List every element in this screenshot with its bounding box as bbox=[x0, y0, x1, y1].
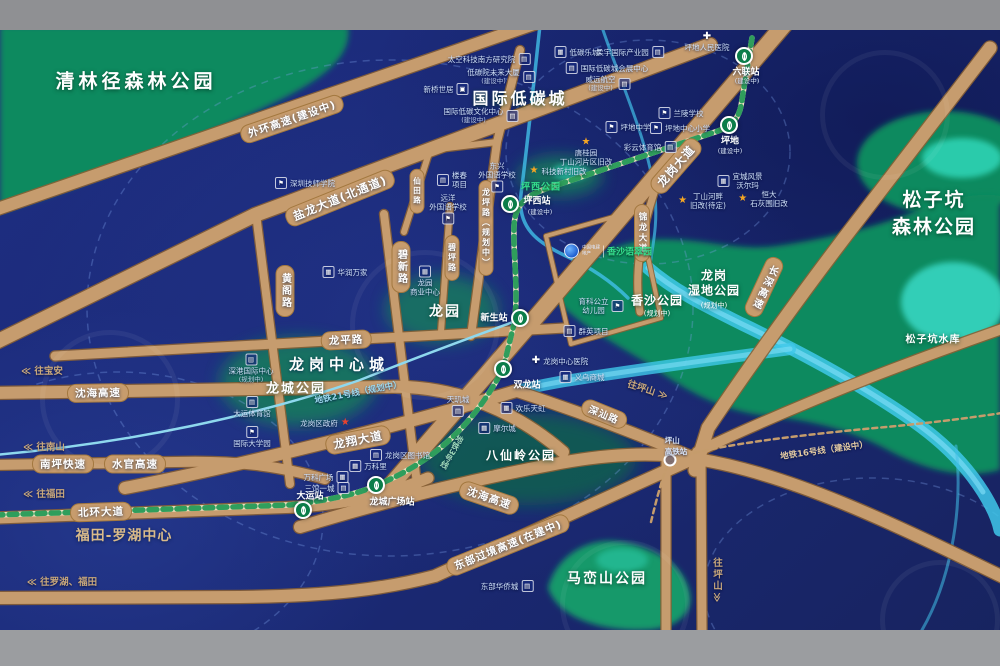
poi: 柔宇国际产业园▤ bbox=[596, 46, 664, 58]
metro-station-icon bbox=[501, 195, 519, 213]
school-icon: ⚑ bbox=[612, 300, 624, 312]
direction-arrow-label: ≪ 往南山 bbox=[23, 439, 65, 453]
poi-label: 恒大石灰围旧改 bbox=[750, 190, 788, 208]
poi-label: 唐桂园丁山河片区旧改 bbox=[560, 149, 613, 167]
school-icon: ⚑ bbox=[246, 426, 258, 438]
poi-label: 深圳技师学院 bbox=[290, 179, 335, 188]
poi-label: 东部华侨城 bbox=[481, 582, 519, 591]
poi-label: 兰陵学校 bbox=[674, 109, 704, 118]
project-marker: 中国电建 地产 香沙语翠园 bbox=[564, 244, 652, 259]
direction-arrow-label: 往坪山≫ bbox=[709, 558, 723, 604]
poi: ✚坪地人民医院 bbox=[685, 32, 730, 52]
poi: 太空科技南方研究院▤ bbox=[448, 53, 531, 65]
building-icon: ▤ bbox=[246, 396, 258, 408]
poi-label: 育科公立幼儿园 bbox=[579, 297, 609, 315]
poi-label: 丁山河畔旧改(待定) bbox=[690, 192, 726, 210]
star-orange-icon: ★ bbox=[738, 194, 747, 204]
letterbox-bottom bbox=[0, 630, 1000, 666]
mall-icon: ▦ bbox=[419, 266, 431, 278]
park-label-intl-low-carbon-city: 国际低碳城 bbox=[472, 85, 567, 109]
park-label-xiangsha-park: 香沙公园(规划中) bbox=[631, 292, 683, 319]
poi: 低碳院未来大厦(建设中)▤ bbox=[467, 68, 535, 86]
poi-label: 龙岗区政府 bbox=[300, 419, 338, 428]
star-orange-icon: ★ bbox=[530, 166, 539, 176]
poi: ▦宜城风景沃尔玛 bbox=[718, 172, 763, 190]
poi: 威远航空(建设中)▤ bbox=[586, 75, 631, 93]
poi-label: 龙岗区图书馆 bbox=[385, 451, 430, 460]
road-label: 北环大道 bbox=[70, 501, 133, 522]
poi-label: 坪地中学 bbox=[621, 123, 651, 132]
poi-label: 国际低碳文化中心(建设中) bbox=[444, 107, 504, 125]
poi: 新桥世居▣ bbox=[424, 83, 469, 95]
poi: ▦万科里 bbox=[349, 460, 387, 472]
poi-label: 华润万家 bbox=[338, 268, 368, 277]
park-label-pingxi-park: 坪西公园 bbox=[521, 180, 561, 193]
letterbox-top bbox=[0, 0, 1000, 30]
poi-label: 天玑城 bbox=[447, 395, 470, 404]
poi-label: 低碳乐城 bbox=[570, 48, 600, 57]
metro-station-status: (建设中) bbox=[718, 145, 743, 155]
park-label-songzikeng-reservoir: 松子坑水库 bbox=[906, 331, 961, 346]
poi-label: 群英项目 bbox=[579, 327, 609, 336]
building-icon: ▤ bbox=[523, 71, 535, 83]
school-icon: ⚑ bbox=[442, 213, 454, 225]
rail-station-label: 坪山高铁站 bbox=[665, 435, 688, 457]
school-icon: ⚑ bbox=[650, 122, 662, 134]
poi: 三馆一城▤ bbox=[305, 482, 350, 494]
poi-label: 东兴外国语学校 bbox=[478, 162, 516, 180]
poi: 天玑城▤ bbox=[447, 395, 470, 417]
poi: ▦华润万家 bbox=[323, 266, 368, 278]
road-label: 龙平路 bbox=[320, 329, 371, 351]
poi: 龙岗区政府★ bbox=[300, 418, 349, 428]
road-label: 南坪快速 bbox=[32, 455, 94, 474]
poi: ▦摩尔城 bbox=[478, 422, 516, 434]
building-icon: ▤ bbox=[619, 78, 631, 90]
school-icon: ⚑ bbox=[606, 121, 618, 133]
star-orange-icon: ★ bbox=[678, 196, 687, 206]
park-label-baxianling-park: 八仙岭公园 bbox=[486, 447, 556, 464]
poi: ▦欢乐天虹 bbox=[501, 402, 546, 414]
school-icon: ⚑ bbox=[659, 107, 671, 119]
mall-icon: ▦ bbox=[555, 46, 567, 58]
poi: 东部华侨城▤ bbox=[481, 580, 534, 592]
hospital-icon: ✚ bbox=[532, 356, 540, 366]
poi-label: 太空科技南方研究院 bbox=[448, 55, 516, 64]
poi: ▤大运体育馆 bbox=[233, 396, 271, 418]
road-label: 沈海高速 bbox=[67, 383, 129, 403]
road-label: 仙田路 bbox=[410, 169, 425, 214]
metro-station-status: (建设中) bbox=[528, 206, 553, 216]
poi: ★唐桂园丁山河片区旧改 bbox=[560, 138, 613, 167]
park-label-songzikeng-forest-park: 松子坑森林公园 bbox=[892, 187, 976, 241]
developer-logo-icon bbox=[564, 244, 579, 259]
hospital-icon: ✚ bbox=[703, 32, 711, 42]
metro-station-status: (建设中) bbox=[735, 75, 760, 85]
building-icon: ▤ bbox=[338, 482, 350, 494]
building-icon: ▤ bbox=[521, 580, 533, 592]
poi-label: 国际低碳城会展中心 bbox=[581, 64, 649, 73]
map-canvas: { "map_title": "龙岗区域交通配套示意图", "parks": [… bbox=[0, 0, 1000, 666]
poi: ▤群英项目 bbox=[564, 325, 609, 337]
poi-label: 国际大学园 bbox=[233, 439, 271, 448]
developer-logo-text: 中国电建 地产 bbox=[582, 246, 600, 257]
poi-label: 彩云体育馆 bbox=[624, 143, 662, 152]
building-icon: ▤ bbox=[564, 325, 576, 337]
mall-icon: ▦ bbox=[323, 266, 335, 278]
poi-label: 远洋外国语学校 bbox=[429, 194, 467, 212]
metro-station-label: 龙城广场站 bbox=[369, 495, 414, 508]
poi: ▦低碳乐城 bbox=[555, 46, 600, 58]
mall-icon: ▦ bbox=[478, 422, 490, 434]
road-label: 黄阁路 bbox=[276, 265, 295, 317]
metro-station-icon bbox=[494, 360, 512, 378]
poi: ✚龙岗中心医院 bbox=[532, 356, 588, 366]
poi-label: 大运体育馆 bbox=[233, 409, 271, 418]
poi: ▤楼春项目 bbox=[437, 171, 467, 189]
metro-station-icon bbox=[511, 309, 529, 327]
poi: ▦龙园商业中心 bbox=[410, 266, 440, 297]
poi-label: 柔宇国际产业园 bbox=[596, 48, 649, 57]
poi-label: 科技新村旧改 bbox=[541, 167, 586, 176]
direction-arrow-label: ≪ 往宝安 bbox=[21, 363, 63, 377]
watermark bbox=[820, 50, 950, 180]
poi-label: 万科里 bbox=[364, 462, 387, 471]
park-label-longyuan-park: 龙园 bbox=[429, 301, 461, 321]
metro-station-icon bbox=[294, 501, 312, 519]
poi: ▤深港国际中心(规划中) bbox=[229, 354, 274, 385]
district-label-futian-luohu-center: 福田-罗湖中心 bbox=[76, 525, 173, 545]
poi: ⚑坪地中心小学 bbox=[650, 122, 710, 134]
building-icon: ▤ bbox=[664, 141, 676, 153]
metro-station-label: 新生站 bbox=[480, 311, 507, 324]
park-label-maluanshan-park: 马峦山公园 bbox=[567, 568, 647, 588]
poi: 国际低碳文化中心(建设中)▤ bbox=[444, 107, 519, 125]
project-name: 香沙语翠园 bbox=[607, 245, 652, 258]
park-label-longgang-wetland-park: 龙岗湿地公园(规划中) bbox=[688, 269, 740, 314]
poi-label: 义乌商城 bbox=[575, 373, 605, 382]
poi-label: 万科广场 bbox=[304, 473, 334, 482]
metro-station-label: 双龙站 bbox=[513, 378, 540, 391]
direction-arrow-label: ≪ 往罗湖、福田 bbox=[27, 574, 97, 588]
poi: ⚑坪地中学 bbox=[606, 121, 651, 133]
metro-station-label: 坪西站 bbox=[523, 194, 550, 207]
poi: ⚑国际大学园 bbox=[233, 426, 271, 448]
poi-label: 宜城风景沃尔玛 bbox=[733, 172, 763, 190]
star-red-icon: ★ bbox=[341, 418, 350, 428]
road-label: 水官高速 bbox=[104, 455, 166, 474]
star-orange-icon: ★ bbox=[582, 138, 591, 148]
poi: ★丁山河畔旧改(待定) bbox=[678, 192, 726, 210]
park-label-qinglinjing-forest-park: 清林径森林公园 bbox=[55, 67, 216, 94]
road-label: 碧新路 bbox=[392, 241, 411, 293]
poi-label: 威远航空(建设中) bbox=[586, 75, 616, 93]
poi-label: 三馆一城 bbox=[305, 484, 335, 493]
mall-icon: ▦ bbox=[718, 175, 730, 187]
building-icon: ▤ bbox=[507, 110, 519, 122]
poi: ▤国际低碳城会展中心 bbox=[566, 62, 649, 74]
building-icon: ▤ bbox=[452, 405, 464, 417]
poi-label: 深港国际中心(规划中) bbox=[229, 367, 274, 385]
mall-icon: ▦ bbox=[501, 402, 513, 414]
poi: ⚑兰陵学校 bbox=[659, 107, 704, 119]
poi: 彩云体育馆▤ bbox=[624, 141, 677, 153]
metro-station-icon bbox=[720, 116, 738, 134]
poi-label: 坪地中心小学 bbox=[665, 124, 710, 133]
mall-icon: ▦ bbox=[349, 460, 361, 472]
direction-arrow-label: ≪ 往福田 bbox=[23, 486, 65, 500]
school-icon: ⚑ bbox=[491, 181, 503, 193]
mall-icon: ▦ bbox=[560, 371, 572, 383]
building-icon: ▤ bbox=[652, 46, 664, 58]
building-icon: ▤ bbox=[245, 354, 257, 366]
poi-label: 摩尔城 bbox=[493, 424, 516, 433]
poi-label: 低碳院未来大厦(建设中) bbox=[467, 68, 520, 86]
metro-station-icon bbox=[367, 476, 385, 494]
building-icon: ▤ bbox=[518, 53, 530, 65]
building-icon: ▤ bbox=[566, 62, 578, 74]
poi-label: 坪地人民医院 bbox=[685, 43, 730, 52]
road-label: 龙坪路（规划中） bbox=[479, 180, 494, 276]
school-icon: ⚑ bbox=[275, 177, 287, 189]
building-icon: ▤ bbox=[437, 174, 449, 186]
logo-divider bbox=[603, 245, 604, 257]
road-label: 碧坪路 bbox=[445, 235, 460, 281]
poi-label: 楼春项目 bbox=[452, 171, 467, 189]
poi: ★科技新村旧改 bbox=[530, 166, 587, 176]
poi: 东兴外国语学校⚑ bbox=[478, 162, 516, 193]
poi: ⚑深圳技师学院 bbox=[275, 177, 335, 189]
poi-label: 龙园商业中心 bbox=[410, 279, 440, 297]
poi-label: 龙岗中心医院 bbox=[543, 357, 588, 366]
poi: ▦义乌商城 bbox=[560, 371, 605, 383]
poi-label: 新桥世居 bbox=[424, 85, 454, 94]
poi-label: 欢乐天虹 bbox=[516, 404, 546, 413]
residence-icon: ▣ bbox=[457, 83, 469, 95]
poi: 育科公立幼儿园⚑ bbox=[579, 297, 624, 315]
poi: ★恒大石灰围旧改 bbox=[738, 190, 787, 208]
poi: 远洋外国语学校⚑ bbox=[429, 194, 467, 225]
metro-station-icon bbox=[735, 47, 753, 65]
district-label-longgang-central-city: 龙岗中心城 bbox=[289, 354, 389, 375]
